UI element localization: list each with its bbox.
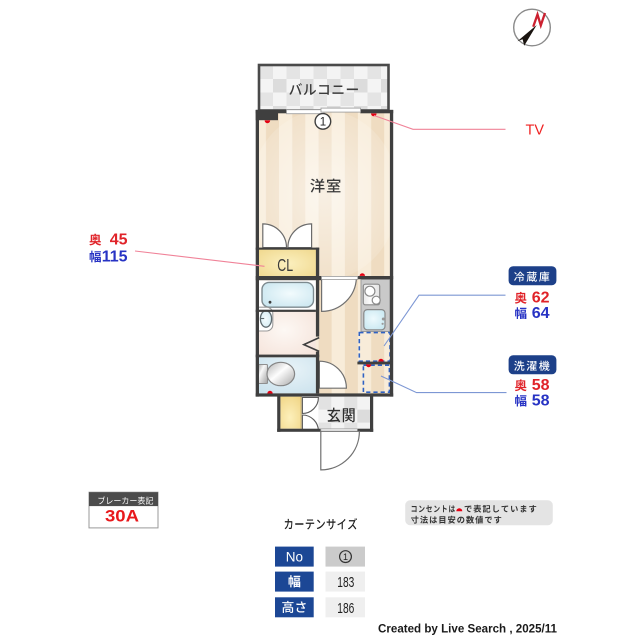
- svg-text:1: 1: [343, 552, 348, 562]
- svg-text:CL: CL: [277, 255, 293, 275]
- svg-text:Created by Live Search , 2025/: Created by Live Search , 2025/11: [378, 622, 557, 636]
- svg-text:58: 58: [532, 392, 550, 409]
- svg-text:45: 45: [110, 231, 128, 248]
- svg-text:115: 115: [102, 248, 128, 265]
- svg-text:183: 183: [337, 574, 354, 591]
- svg-text:64: 64: [532, 305, 550, 322]
- svg-text:1: 1: [320, 117, 326, 129]
- svg-text:TV: TV: [526, 123, 545, 139]
- svg-text:No: No: [286, 549, 303, 564]
- svg-text:30A: 30A: [105, 508, 139, 526]
- svg-text:186: 186: [337, 600, 354, 617]
